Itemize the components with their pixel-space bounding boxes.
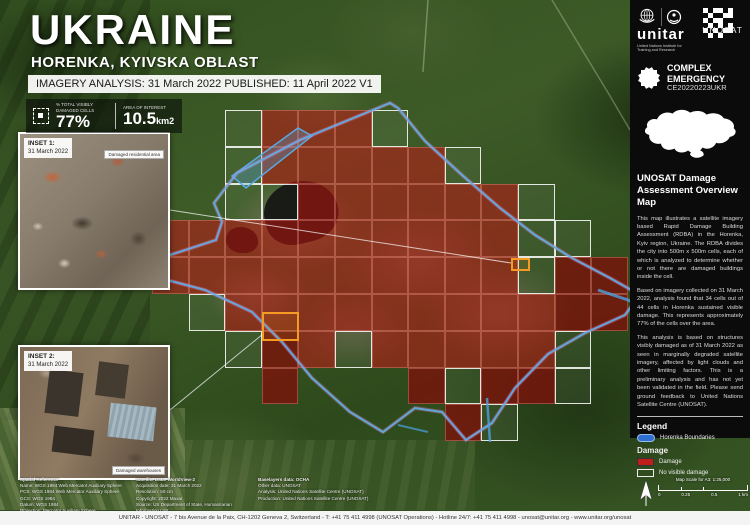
complex-emergency-block: COMPLEX EMERGENCY CE20220223UKR (637, 63, 743, 92)
inset1-label: INSET 1: 31 March 2022 (24, 138, 72, 158)
damaged-grid-cell (372, 294, 409, 331)
damaged-grid-cell (481, 331, 518, 368)
damaged-grid-cell (408, 294, 445, 331)
damaged-grid-cell (555, 294, 592, 331)
damaged-grid-cell (262, 257, 299, 294)
damaged-grid-cell (445, 220, 482, 257)
no-damage-grid-cell (372, 110, 409, 147)
un-emblem-icon (637, 7, 657, 27)
list-item: 1 km (738, 492, 748, 497)
damaged-grid-cell (591, 257, 628, 294)
unitar-wordmark: unitar (637, 27, 696, 44)
damaged-grid-cell (335, 294, 372, 331)
legend-damage-row: Damage (637, 458, 743, 466)
scale-bar: Map Scale for A3: 1:25,000 00.250.51 km (658, 477, 748, 497)
region-subtitle: HORENKA, KYIVSKA OBLAST (31, 54, 259, 71)
damaged-grid-cell (445, 184, 482, 221)
inset2-date: 31 March 2022 (28, 362, 68, 368)
credits-production: Baselayers data: OCHAOther data: UNOSATA… (258, 477, 370, 502)
no-damage-grid-cell (445, 147, 482, 184)
list-item: This analysis is based on structures vis… (637, 334, 743, 410)
no-damage-grid-cell (555, 331, 592, 368)
list-item: Analysis: United Nations Satellite Centr… (258, 489, 370, 495)
unosat-wordmark: UNOSAT (702, 25, 743, 35)
damaged-grid-cell (518, 294, 555, 331)
inset2-callout: Damaged warehouses (112, 466, 165, 475)
damaged-cells-value: 77% (56, 113, 90, 130)
imagery-texture (51, 426, 94, 457)
unitar-logo: unitar United Nations Institute for Trai… (637, 7, 696, 53)
damaged-grid-cell (298, 184, 335, 221)
inset2-source-box (262, 312, 299, 341)
area-stat: AREA OF INTEREST 10.5km2 (123, 105, 175, 128)
damaged-grid-cell (445, 331, 482, 368)
damaged-grid-cell (262, 147, 299, 184)
emergency-text: COMPLEX EMERGENCY CE20220223UKR (667, 63, 727, 92)
legend-divider (637, 416, 743, 417)
info-sidebar: unitar United Nations Institute for Trai… (630, 0, 750, 438)
no-damage-grid-cell (225, 147, 262, 184)
sidebar-paragraphs: This map illustrates a satellite imagery… (637, 215, 743, 410)
no-damage-grid-cell (262, 184, 299, 221)
inset1-callout: Damaged residential area (104, 150, 164, 159)
stats-box: % TOTAL VISIBLY DAMAGED CELLS 77% AREA O… (26, 99, 182, 133)
damaged-grid-cell (298, 331, 335, 368)
inset1-satellite-image: INSET 1: 31 March 2022 Damaged residenti… (18, 132, 170, 290)
damaged-grid-cell (335, 110, 372, 147)
damaged-grid-cell (408, 368, 445, 405)
area-value: 10.5km2 (123, 110, 174, 127)
inset1-date: 31 March 2022 (28, 149, 68, 155)
logo-divider (661, 8, 662, 26)
damaged-cell-icon (33, 108, 49, 124)
damaged-grid-cell (189, 220, 226, 257)
scale-title: Map Scale for A3: 1:25,000 (658, 477, 748, 482)
emergency-code: CE20220223UKR (667, 84, 727, 93)
damaged-grid-cell (481, 220, 518, 257)
no-damage-grid-cell (225, 110, 262, 147)
damaged-grid-cell (225, 257, 262, 294)
damaged-grid-cell (262, 110, 299, 147)
damaged-grid-cell (408, 147, 445, 184)
no-damage-grid-cell (518, 184, 555, 221)
damaged-grid-cell (335, 184, 372, 221)
footer-bar: UNITAR - UNOSAT - 7 bis Avenue de la Pai… (0, 511, 750, 525)
legend-damage-title: Damage (637, 446, 743, 455)
damaged-grid-cell (372, 257, 409, 294)
damaged-grid-cell (408, 331, 445, 368)
damaged-grid-cell (408, 257, 445, 294)
imagery-texture (44, 369, 83, 417)
damaged-grid-cell (298, 220, 335, 257)
unosat-pixel-icon (703, 8, 708, 13)
scale-line (658, 485, 748, 491)
damaged-grid-cell (481, 184, 518, 221)
boundary-swatch (637, 434, 655, 442)
credits-spatial-reference: Spatial ReferenceName: WGS 1984 Web Merc… (20, 477, 132, 514)
damaged-grid-cell (335, 147, 372, 184)
north-arrow-icon (638, 480, 654, 506)
no-damage-grid-cell (555, 220, 592, 257)
list-item: This map illustrates a satellite imagery… (637, 215, 743, 282)
list-item: 0.5 (711, 492, 717, 497)
country-title: UKRAINE (30, 6, 235, 54)
no-damage-grid-cell (445, 368, 482, 405)
damage-swatch (637, 458, 654, 466)
damaged-grid-cell (298, 294, 335, 331)
unosat-map-poster: INSET 1: 31 March 2022 Damaged residenti… (0, 0, 750, 525)
damaged-grid-cell (189, 257, 226, 294)
damaged-grid-cell (335, 257, 372, 294)
damaged-grid-cell (262, 368, 299, 405)
credits-satellite-data: Satellite Data: WorldView-2Acquisition d… (136, 477, 248, 514)
damaged-grid-cell (481, 368, 518, 405)
no-damage-grid-cell (481, 404, 518, 441)
no-damage-grid-cell (189, 294, 226, 331)
list-item: Production: United Nations Satellite Cen… (258, 496, 370, 502)
legend-boundary-row: Horenka Boundaries (637, 434, 743, 442)
unitar-symbol-icon (666, 9, 682, 25)
list-item: 0.25 (681, 492, 690, 497)
no-damage-grid-cell (518, 220, 555, 257)
no-damage-grid-cell (225, 184, 262, 221)
damaged-grid-cell (225, 294, 262, 331)
no-damage-label: No visible damage (659, 470, 708, 476)
inset1-title: INSET 1: (28, 140, 55, 147)
damaged-grid-cell (445, 257, 482, 294)
imagery-texture (95, 361, 129, 398)
damaged-grid-cell (518, 368, 555, 405)
damaged-grid-cell (408, 220, 445, 257)
no-damage-grid-cell (225, 331, 262, 368)
damaged-grid-cell (225, 220, 262, 257)
stats-divider (115, 103, 116, 129)
damaged-grid-cell (298, 147, 335, 184)
sidebar-heading: UNOSAT Damage Assessment Overview Map (637, 173, 743, 210)
damaged-grid-cell (335, 220, 372, 257)
logo-row: unitar United Nations Institute for Trai… (637, 7, 743, 53)
damage-label: Damage (659, 459, 682, 465)
no-damage-grid-cell (335, 331, 372, 368)
inset2-title: INSET 2: (28, 353, 55, 360)
no-damage-swatch (637, 469, 654, 477)
footer-text: UNITAR - UNOSAT - 7 bis Avenue de la Pai… (119, 515, 631, 521)
damaged-grid-cell (372, 184, 409, 221)
damaged-grid-cell (372, 220, 409, 257)
damaged-grid-cell (262, 220, 299, 257)
damaged-grid-cell (408, 184, 445, 221)
imagery-texture (107, 402, 156, 441)
damaged-grid-cell (445, 404, 482, 441)
no-damage-grid-cell (555, 368, 592, 405)
damaged-grid-cell (481, 294, 518, 331)
ukraine-silhouette-icon (638, 101, 742, 165)
damaged-grid-cell (591, 294, 628, 331)
scale-ticks: 00.250.51 km (658, 492, 748, 497)
unosat-logo: UNOSAT (702, 7, 743, 35)
list-item: 0 (658, 492, 661, 497)
damaged-grid-cell (298, 257, 335, 294)
boundary-label: Horenka Boundaries (660, 435, 715, 441)
list-item: PCS: WGS 1984 Web Mercator Auxiliary Sph… (20, 489, 132, 495)
list-item: Based on imagery collected on 31 March 2… (637, 287, 743, 329)
inset2-satellite-image: INSET 2: 31 March 2022 Damaged warehouse… (18, 345, 170, 480)
damaged-grid-cell (298, 110, 335, 147)
damaged-grid-cell (372, 331, 409, 368)
inset1-source-box (511, 258, 530, 271)
damaged-grid-cell (555, 257, 592, 294)
damaged-grid-cell (445, 294, 482, 331)
unitar-subtext: United Nations Institute for Training an… (637, 44, 696, 54)
legend-title: Legend (637, 421, 743, 431)
inset2-label: INSET 2: 31 March 2022 (24, 351, 72, 371)
starburst-icon (637, 66, 661, 90)
imagery-analysis-bar: IMAGERY ANALYSIS: 31 March 2022 PUBLISHE… (28, 75, 381, 93)
legend-nodamage-row: No visible damage (637, 469, 743, 477)
damaged-grid-cell (372, 147, 409, 184)
damaged-cells-stat: % TOTAL VISIBLY DAMAGED CELLS 77% (56, 102, 108, 130)
damaged-grid-cell (518, 331, 555, 368)
